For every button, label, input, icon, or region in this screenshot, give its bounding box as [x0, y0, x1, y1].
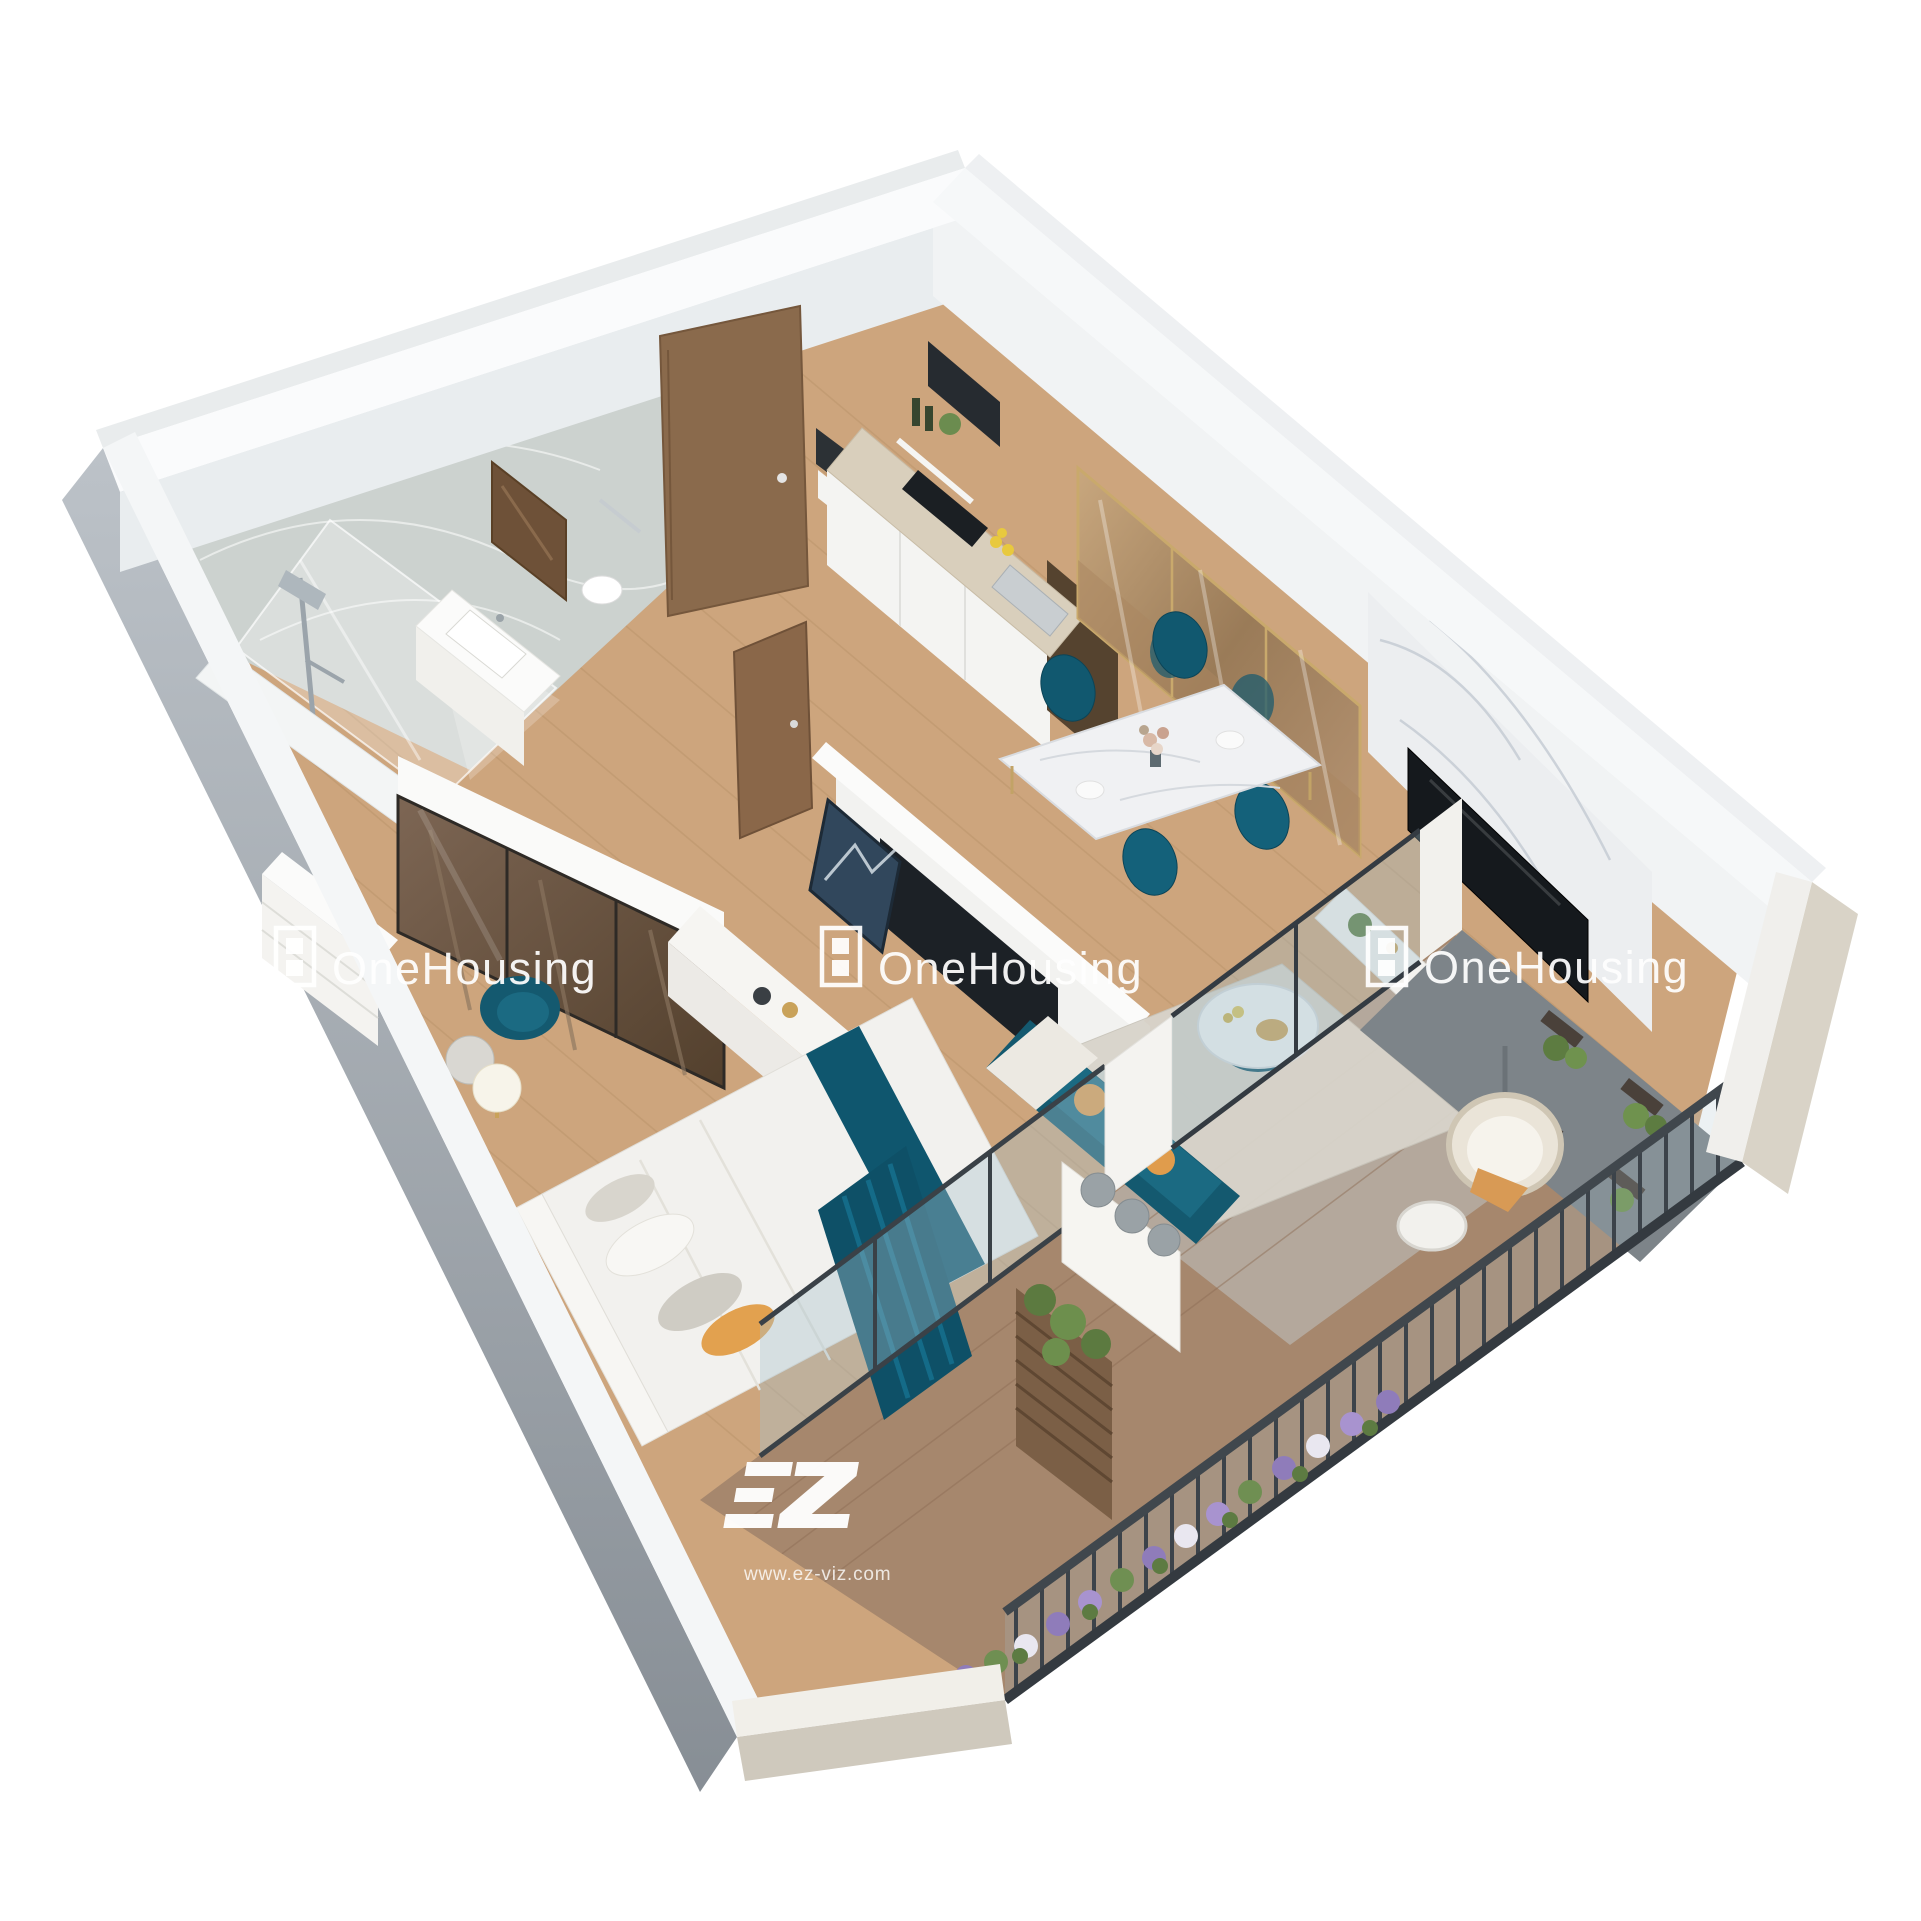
bathroom-door: [734, 622, 812, 838]
wine-bottle: [925, 406, 933, 431]
balcony-side-table: [1398, 1202, 1466, 1250]
watermark-text: OneHousing: [1424, 942, 1689, 993]
place-setting: [1076, 781, 1104, 799]
gold-vase: [782, 1002, 798, 1018]
floor-plan-stage: OneHousing OneHousing OneHousing: [0, 0, 1921, 1921]
herb-plant: [939, 413, 961, 435]
topiary-sphere: [1148, 1224, 1180, 1256]
floor-plan-render: OneHousing OneHousing OneHousing: [0, 0, 1921, 1921]
faucet: [496, 614, 504, 622]
wine-bottle: [912, 398, 920, 426]
topiary-sphere: [1115, 1199, 1149, 1233]
entry-door: [660, 306, 808, 616]
topiary-sphere: [1081, 1173, 1115, 1207]
toilet: [582, 576, 622, 604]
watermark-text: OneHousing: [878, 943, 1143, 994]
bathroom-door-handle: [790, 720, 798, 728]
entry-door-handle: [777, 473, 787, 483]
decor-sphere: [753, 987, 771, 1005]
credit-url: www.ez-viz.com: [743, 1564, 891, 1585]
watermark-text: OneHousing: [332, 943, 597, 994]
place-setting: [1216, 731, 1244, 749]
